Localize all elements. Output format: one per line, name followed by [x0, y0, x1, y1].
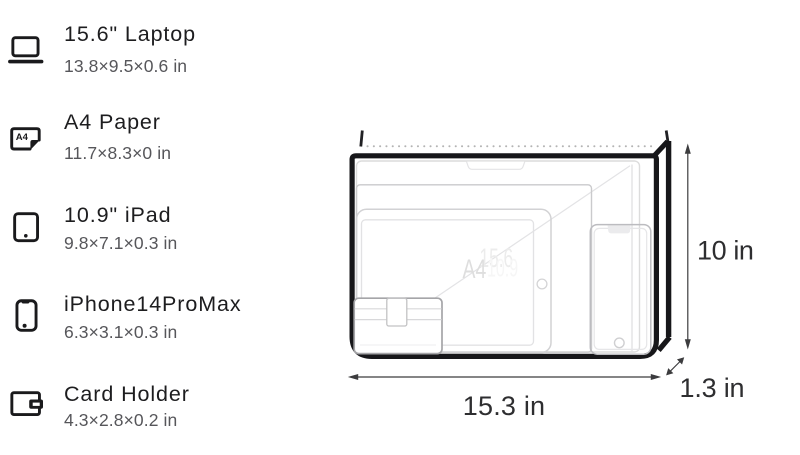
svg-text:10.9: 10.9: [487, 255, 518, 282]
svg-text:1.3 in: 1.3 in: [680, 373, 745, 403]
svg-text:10 in: 10 in: [697, 236, 754, 266]
svg-text:A4: A4: [16, 132, 29, 143]
svg-text:A4: A4: [463, 254, 487, 284]
svg-text:15.3 in: 15.3 in: [463, 391, 545, 421]
